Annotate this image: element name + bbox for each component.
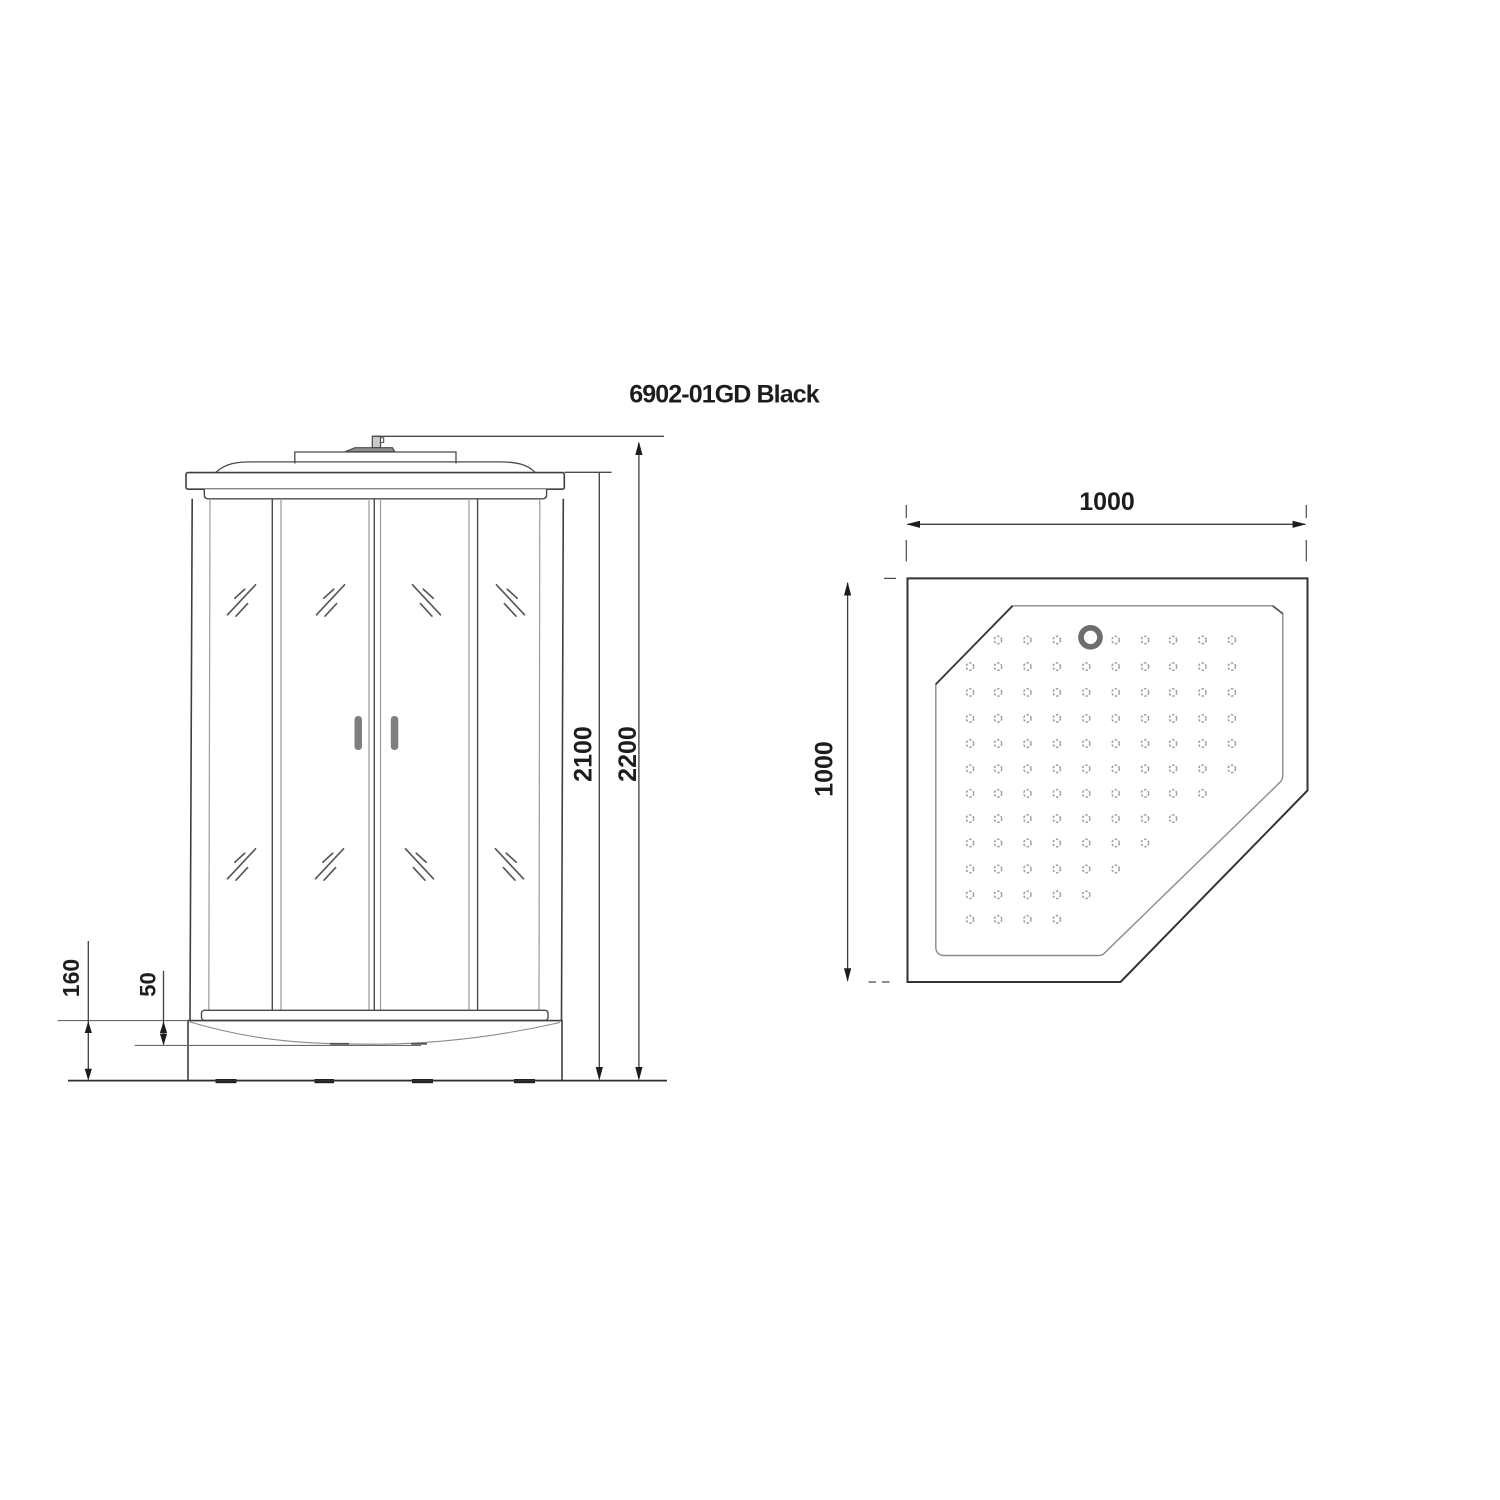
svg-text:1000: 1000 xyxy=(811,741,839,797)
svg-text:160: 160 xyxy=(58,959,84,997)
svg-text:1000: 1000 xyxy=(1079,488,1135,516)
svg-text:2100: 2100 xyxy=(570,726,598,782)
svg-text:2200: 2200 xyxy=(614,726,642,782)
svg-text:50: 50 xyxy=(136,972,161,996)
svg-text:6902-01GD Black: 6902-01GD Black xyxy=(629,381,819,409)
